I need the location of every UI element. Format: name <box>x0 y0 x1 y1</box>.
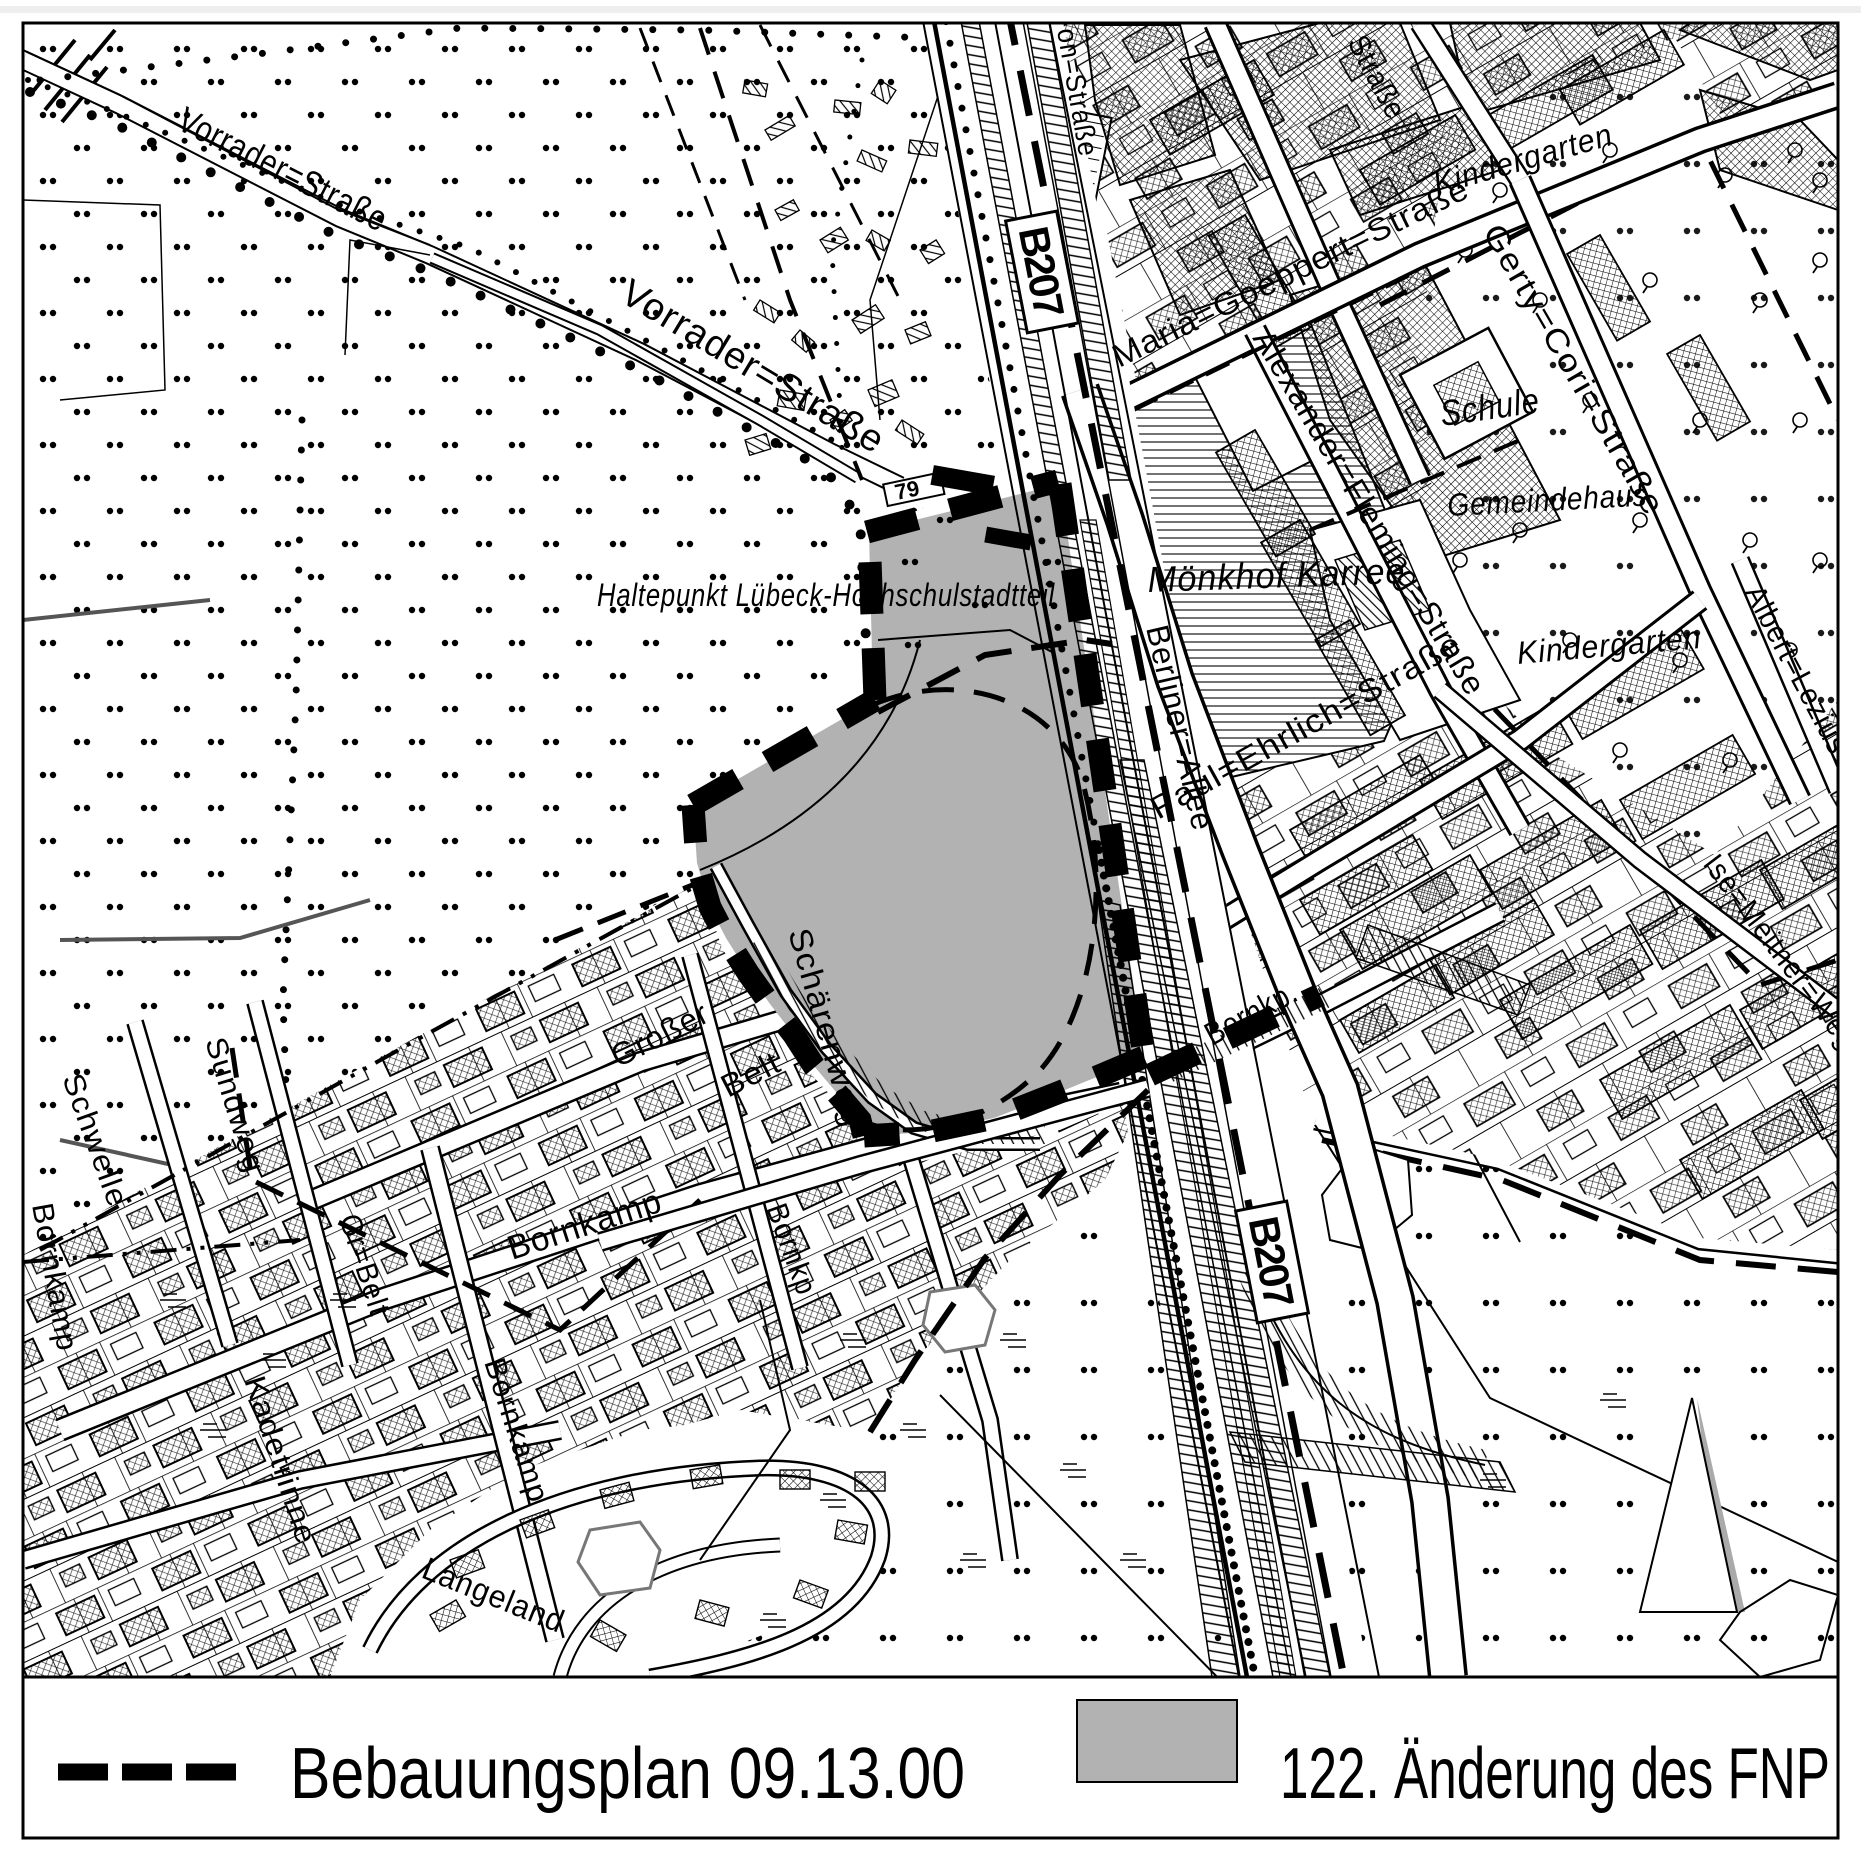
svg-text:Haltepunkt Lübeck-Hochschulsta: Haltepunkt Lübeck-Hochschulstadtteil <box>597 577 1055 613</box>
svg-text:Bebauungsplan 09.13.00: Bebauungsplan 09.13.00 <box>290 1734 965 1814</box>
svg-text:79: 79 <box>893 475 922 505</box>
svg-text:122. Änderung des FNP: 122. Änderung des FNP <box>1280 1734 1830 1814</box>
